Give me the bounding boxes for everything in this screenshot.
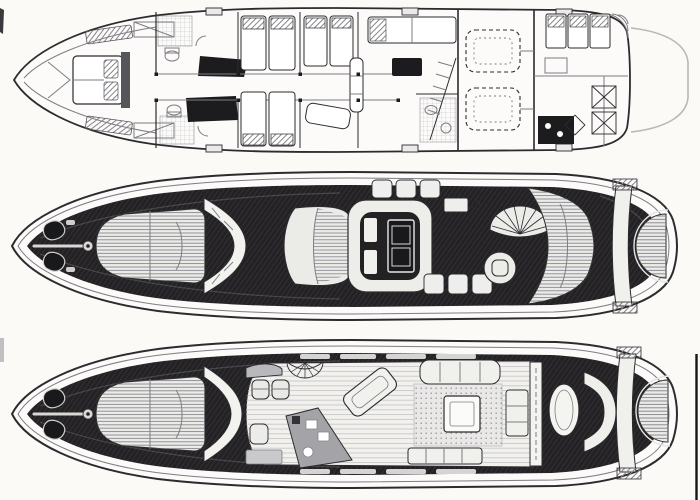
- flybridge-forward-sunpad: [284, 206, 350, 285]
- u-settee: [348, 200, 432, 292]
- page-edge-mark: [0, 8, 4, 34]
- lower-deck-accommodation-plan: [0, 0, 700, 164]
- chain-locker-port: [43, 221, 64, 240]
- main-deck-plan: [0, 332, 700, 500]
- sideboard: [408, 448, 482, 464]
- yacht-deck-plans: [0, 0, 700, 500]
- helm-wheel-seat: [484, 252, 516, 284]
- crew-bunks: [546, 14, 610, 48]
- cockpit-oval-table: [549, 384, 579, 436]
- flybridge-deck-plan: [0, 164, 700, 332]
- wet-bar: [444, 198, 468, 212]
- chain-locker-starboard: [43, 252, 64, 271]
- salon: [246, 354, 542, 474]
- swim-platform: [631, 28, 688, 132]
- salon-table: [444, 396, 480, 432]
- galley-counter: [538, 116, 574, 144]
- bow-sunpad: [96, 209, 205, 283]
- bow-sunpad: [96, 377, 205, 451]
